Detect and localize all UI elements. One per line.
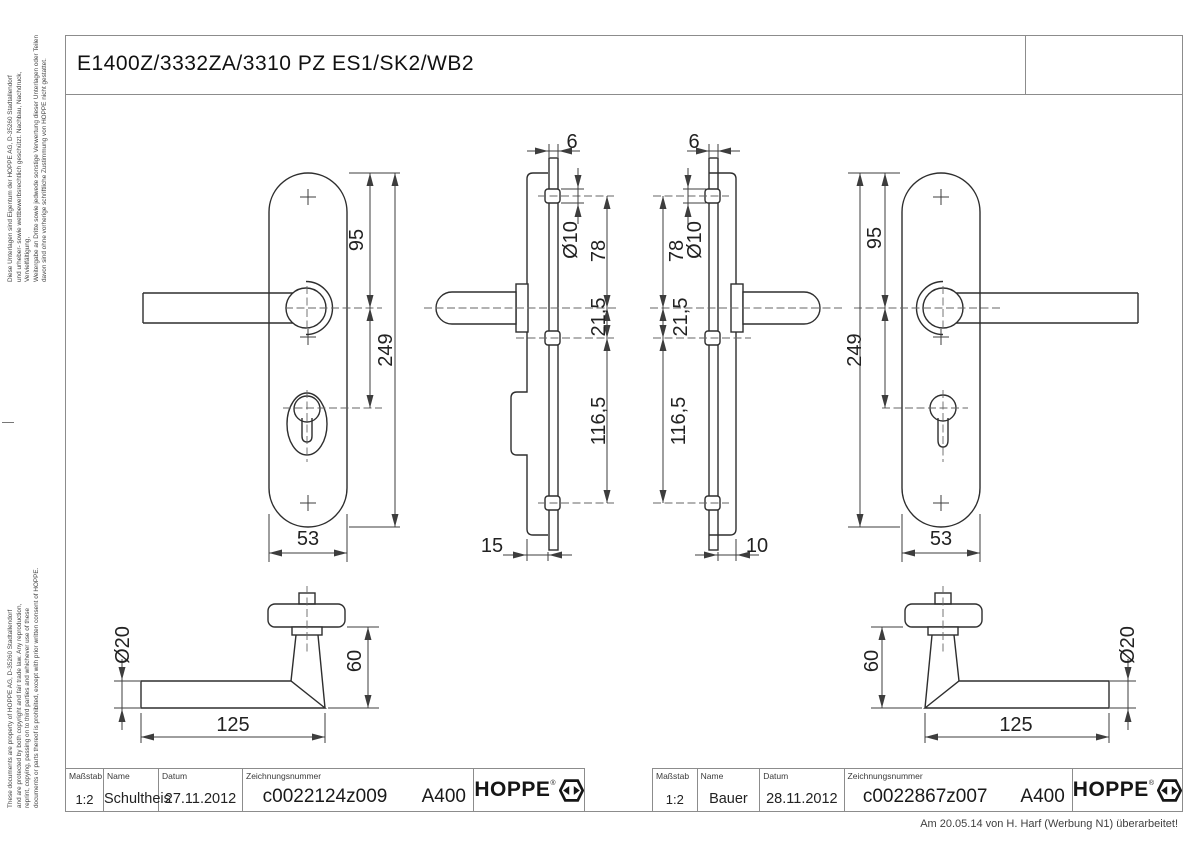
hoppe-wordmark: HOPPE — [474, 778, 550, 802]
dim-78-profile-left: 78 — [588, 240, 610, 262]
dim-95-front-left: 95 — [346, 229, 368, 251]
profile-view-right: 6 Ø10 78 21,5 116,5 10 — [650, 131, 842, 561]
dim-116-5-profile-right: 116,5 — [668, 397, 690, 446]
dims-handle-left: Ø20 60 125 — [112, 626, 379, 743]
dim-249-front-right: 249 — [844, 333, 866, 366]
registered-mark: ® — [550, 780, 555, 787]
name-value: Schultheis — [104, 791, 158, 807]
format-code: A400 — [422, 786, 466, 808]
front-view-left: 95 249 53 — [143, 173, 400, 562]
format-code: A400 — [1020, 786, 1064, 808]
name-value: Bauer — [698, 791, 760, 807]
profile-view-left: 6 Ø10 78 21,5 116,5 15 — [424, 131, 616, 561]
dim-dia20-handle-right: Ø20 — [1117, 626, 1139, 664]
dim-116-5-profile-left: 116,5 — [588, 397, 610, 446]
hoppe-hexagon-icon — [559, 779, 584, 802]
dim-dia20-handle-left: Ø20 — [112, 626, 134, 664]
dim-60-handle-right: 60 — [861, 650, 883, 672]
dim-78-profile-right: 78 — [666, 240, 688, 262]
date-label: Datum — [763, 771, 788, 781]
drawing-number-cell: Zeichnungsnummer c0022124z009 A400 — [243, 769, 474, 811]
name-label: Name — [107, 771, 130, 781]
drawing-sheet: Diese Unterlagen sind Eigentum der HOPPE… — [0, 0, 1200, 849]
hoppe-logo: HOPPE® — [474, 769, 584, 811]
dim-6-profile-left: 6 — [566, 131, 577, 153]
hoppe-hexagon-icon — [1157, 779, 1182, 802]
name-cell: Name Bauer — [698, 769, 761, 811]
date-label: Datum — [162, 771, 187, 781]
dims-front-left: 95 249 53 — [269, 173, 400, 562]
handle-view-right: 60 Ø20 125 — [861, 586, 1139, 743]
dims-front-right: 95 249 53 — [844, 173, 980, 562]
dim-15-profile-left: 15 — [481, 535, 503, 557]
name-label: Name — [701, 771, 724, 781]
dims-handle-right: 60 Ø20 125 — [861, 626, 1139, 743]
drawing-number-label: Zeichnungsnummer — [848, 771, 923, 781]
date-value: 27.11.2012 — [159, 791, 242, 807]
dim-10-profile-right: 10 — [746, 535, 768, 557]
dim-125-handle-left: 125 — [216, 714, 249, 736]
dim-60-handle-left: 60 — [344, 650, 366, 672]
dim-95-front-right: 95 — [864, 227, 886, 249]
dim-21-5-profile-right: 21,5 — [670, 298, 692, 337]
title-block-left: Maßstab 1:2 Name Schultheis Datum 27.11.… — [65, 768, 585, 812]
registered-mark: ® — [1149, 780, 1154, 787]
dim-249-front-left: 249 — [375, 333, 397, 366]
drawing-number-value: c0022867z007 — [845, 786, 1006, 808]
scale-value: 1:2 — [653, 792, 697, 807]
date-value: 28.11.2012 — [760, 791, 843, 807]
drawing-number-label: Zeichnungsnummer — [246, 771, 321, 781]
date-cell: Datum 28.11.2012 — [760, 769, 844, 811]
revision-note: Am 20.05.14 von H. Harf (Werbung N1) übe… — [920, 818, 1178, 830]
drawing-number-value: c0022124z009 — [243, 786, 407, 808]
dim-125-handle-right: 125 — [999, 714, 1032, 736]
handle-view-left: Ø20 60 125 — [112, 586, 379, 743]
technical-drawing: 95 249 53 — [0, 0, 1200, 849]
dim-53-front-right: 53 — [930, 528, 952, 550]
scale-cell: Maßstab 1:2 — [653, 769, 698, 811]
scale-cell: Maßstab 1:2 — [66, 769, 104, 811]
scale-value: 1:2 — [66, 792, 103, 807]
date-cell: Datum 27.11.2012 — [159, 769, 243, 811]
scale-label: Maßstab — [69, 771, 102, 781]
hoppe-logo: HOPPE® — [1073, 769, 1182, 811]
name-cell: Name Schultheis — [104, 769, 159, 811]
dim-21-5-profile-left: 21,5 — [588, 298, 610, 337]
dim-dia10-profile-left: Ø10 — [560, 221, 582, 259]
drawing-number-cell: Zeichnungsnummer c0022867z007 A400 — [845, 769, 1073, 811]
title-block-right: Maßstab 1:2 Name Bauer Datum 28.11.2012 … — [652, 768, 1183, 812]
dim-6-profile-right: 6 — [688, 131, 699, 153]
scale-label: Maßstab — [656, 771, 689, 781]
front-view-right: 95 249 53 — [844, 173, 1138, 562]
hoppe-wordmark: HOPPE — [1073, 778, 1149, 802]
dim-53-front-left: 53 — [297, 528, 319, 550]
